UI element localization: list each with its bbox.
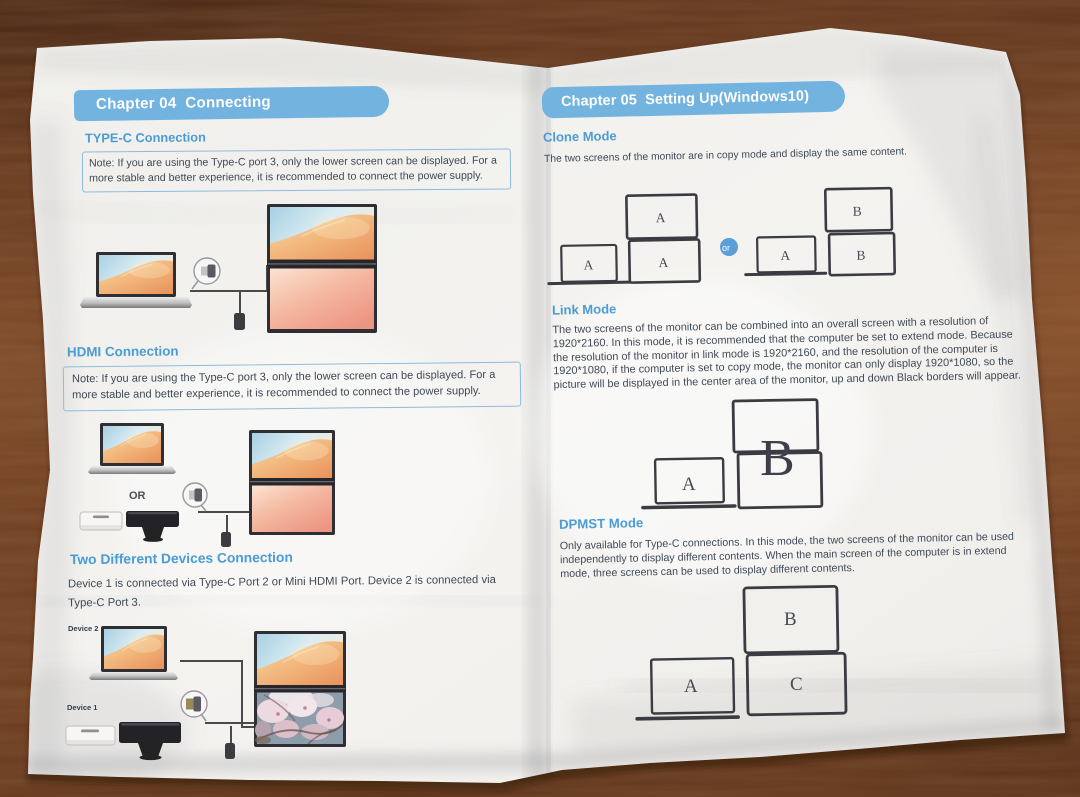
svg-text:OR: OR xyxy=(129,490,146,502)
svg-text:B: B xyxy=(853,204,862,219)
svg-text:C: C xyxy=(790,674,803,695)
svg-text:A: A xyxy=(656,210,666,225)
svg-text:B: B xyxy=(856,248,865,263)
svg-text:Device 2: Device 2 xyxy=(68,624,98,633)
svg-text:A: A xyxy=(780,248,790,263)
svg-text:A: A xyxy=(583,257,593,272)
svg-text:Device 1: Device 1 xyxy=(67,703,97,712)
svg-text:A: A xyxy=(658,255,668,270)
svg-text:or: or xyxy=(722,243,730,253)
svg-text:A: A xyxy=(684,676,698,697)
svg-text:B: B xyxy=(760,430,795,487)
svg-text:A: A xyxy=(682,474,696,495)
svg-text:B: B xyxy=(784,609,797,630)
